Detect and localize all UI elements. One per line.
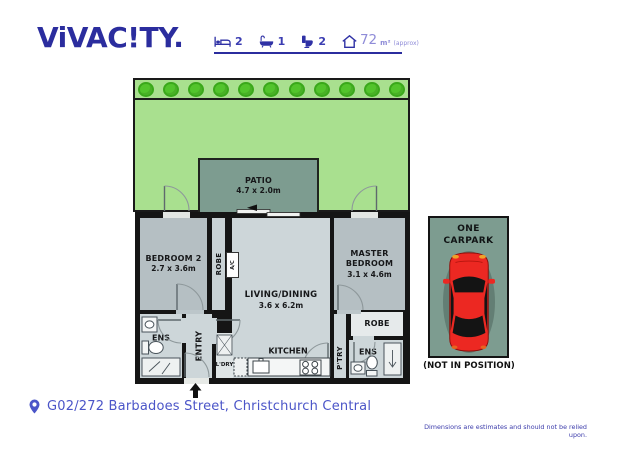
master-robe-label: ROBE [364, 319, 389, 329]
bush-icon [188, 82, 204, 97]
stat-floor-area-value: 72 [360, 34, 377, 48]
stat-bedrooms: 2 [214, 35, 243, 48]
bedroom2-dims: 2.7 x 3.6m [151, 264, 195, 274]
patio: PATIO 4.7 x 2.0m [198, 158, 319, 212]
stat-floor-area-unit: m² [380, 39, 390, 48]
carpark-title: ONE CARPARK [430, 224, 507, 247]
kitchen-label: KITCHEN [268, 347, 307, 356]
room-ensuite1 [140, 314, 182, 378]
master-dims: 3.1 x 4.6m [347, 270, 391, 280]
bath-icon [259, 35, 274, 48]
ac-label: A/C [230, 260, 236, 269]
brand-logo: ViVAC!TY. [37, 24, 183, 52]
bush-icon [213, 82, 229, 97]
bedroom2-label: BEDROOM 2 [145, 254, 201, 264]
living-label: LIVING/DINING [245, 290, 318, 301]
living-dims: 3.6 x 6.2m [245, 301, 318, 311]
living-label-block: LIVING/DINING 3.6 x 6.2m [245, 290, 318, 311]
fridge-label: F [238, 363, 242, 371]
entry-arrow-icon [190, 383, 202, 398]
bush-icon [263, 82, 279, 97]
bush-icon [163, 82, 179, 97]
bush-icon [389, 82, 405, 97]
room-ensuite2 [349, 340, 403, 378]
bush-icon [339, 82, 355, 97]
address: G02/272 Barbadoes Street, Christchurch C… [29, 399, 371, 414]
stats-underline [214, 52, 402, 54]
room-laundry-closet [216, 333, 233, 378]
master-label: MASTER BEDROOM [341, 249, 399, 270]
bush-icon [289, 82, 305, 97]
patio-dims: 4.7 x 2.0m [236, 186, 280, 196]
bush-icon [364, 82, 380, 97]
bed-icon [214, 35, 231, 48]
stat-bathrooms-value: 1 [278, 35, 286, 48]
robe-label: ROBE [215, 253, 223, 276]
carpark-box: ONE CARPARK [428, 216, 509, 358]
bush-icon [238, 82, 254, 97]
hedge-row [135, 80, 408, 100]
floorplan-page: ViVAC!TY. 2 1 2 [0, 0, 639, 452]
house-icon [342, 35, 357, 48]
stat-toilets: 2 [301, 35, 326, 48]
location-pin-icon [29, 399, 40, 414]
entry-label: ENTRY [195, 331, 204, 362]
toilet-icon [301, 35, 314, 48]
stat-floor-area-qualifier: (approx) [394, 40, 419, 48]
room-bedroom2: BEDROOM 2 2.7 x 3.6m [140, 218, 207, 310]
room-master-robe: ROBE [351, 312, 403, 336]
room-master-bedroom: MASTER BEDROOM 3.1 x 4.6m [334, 218, 405, 310]
property-stats: 2 1 2 72 m² (approx) [214, 31, 419, 51]
stat-bathrooms: 1 [259, 35, 286, 48]
bush-icon [138, 82, 154, 97]
carpark-title-line2: CARPARK [430, 236, 507, 248]
bush-icon [314, 82, 330, 97]
address-text: G02/272 Barbadoes Street, Christchurch C… [47, 399, 371, 414]
washer-dryer-label: W/D [218, 343, 231, 349]
stat-toilets-value: 2 [318, 35, 326, 48]
disclaimer: Dimensions are estimates and should not … [415, 423, 587, 439]
ensuite2-label: ENS [359, 348, 377, 357]
carpark-title-line1: ONE [430, 224, 507, 236]
apartment-unit: BEDROOM 2 2.7 x 3.6m LIVING/DINING 3.6 x… [135, 212, 410, 384]
car-icon [442, 250, 496, 354]
stat-bedrooms-value: 2 [235, 35, 243, 48]
laundry-label: L'DRY [216, 362, 234, 368]
stat-floor-area: 72 m² (approx) [342, 34, 419, 48]
patio-label: PATIO [245, 176, 272, 186]
carpark-note: (NOT IN POSITION) [414, 361, 524, 371]
pantry-label: P'TRY [336, 346, 344, 370]
ensuite1-label: ENS [152, 334, 170, 343]
